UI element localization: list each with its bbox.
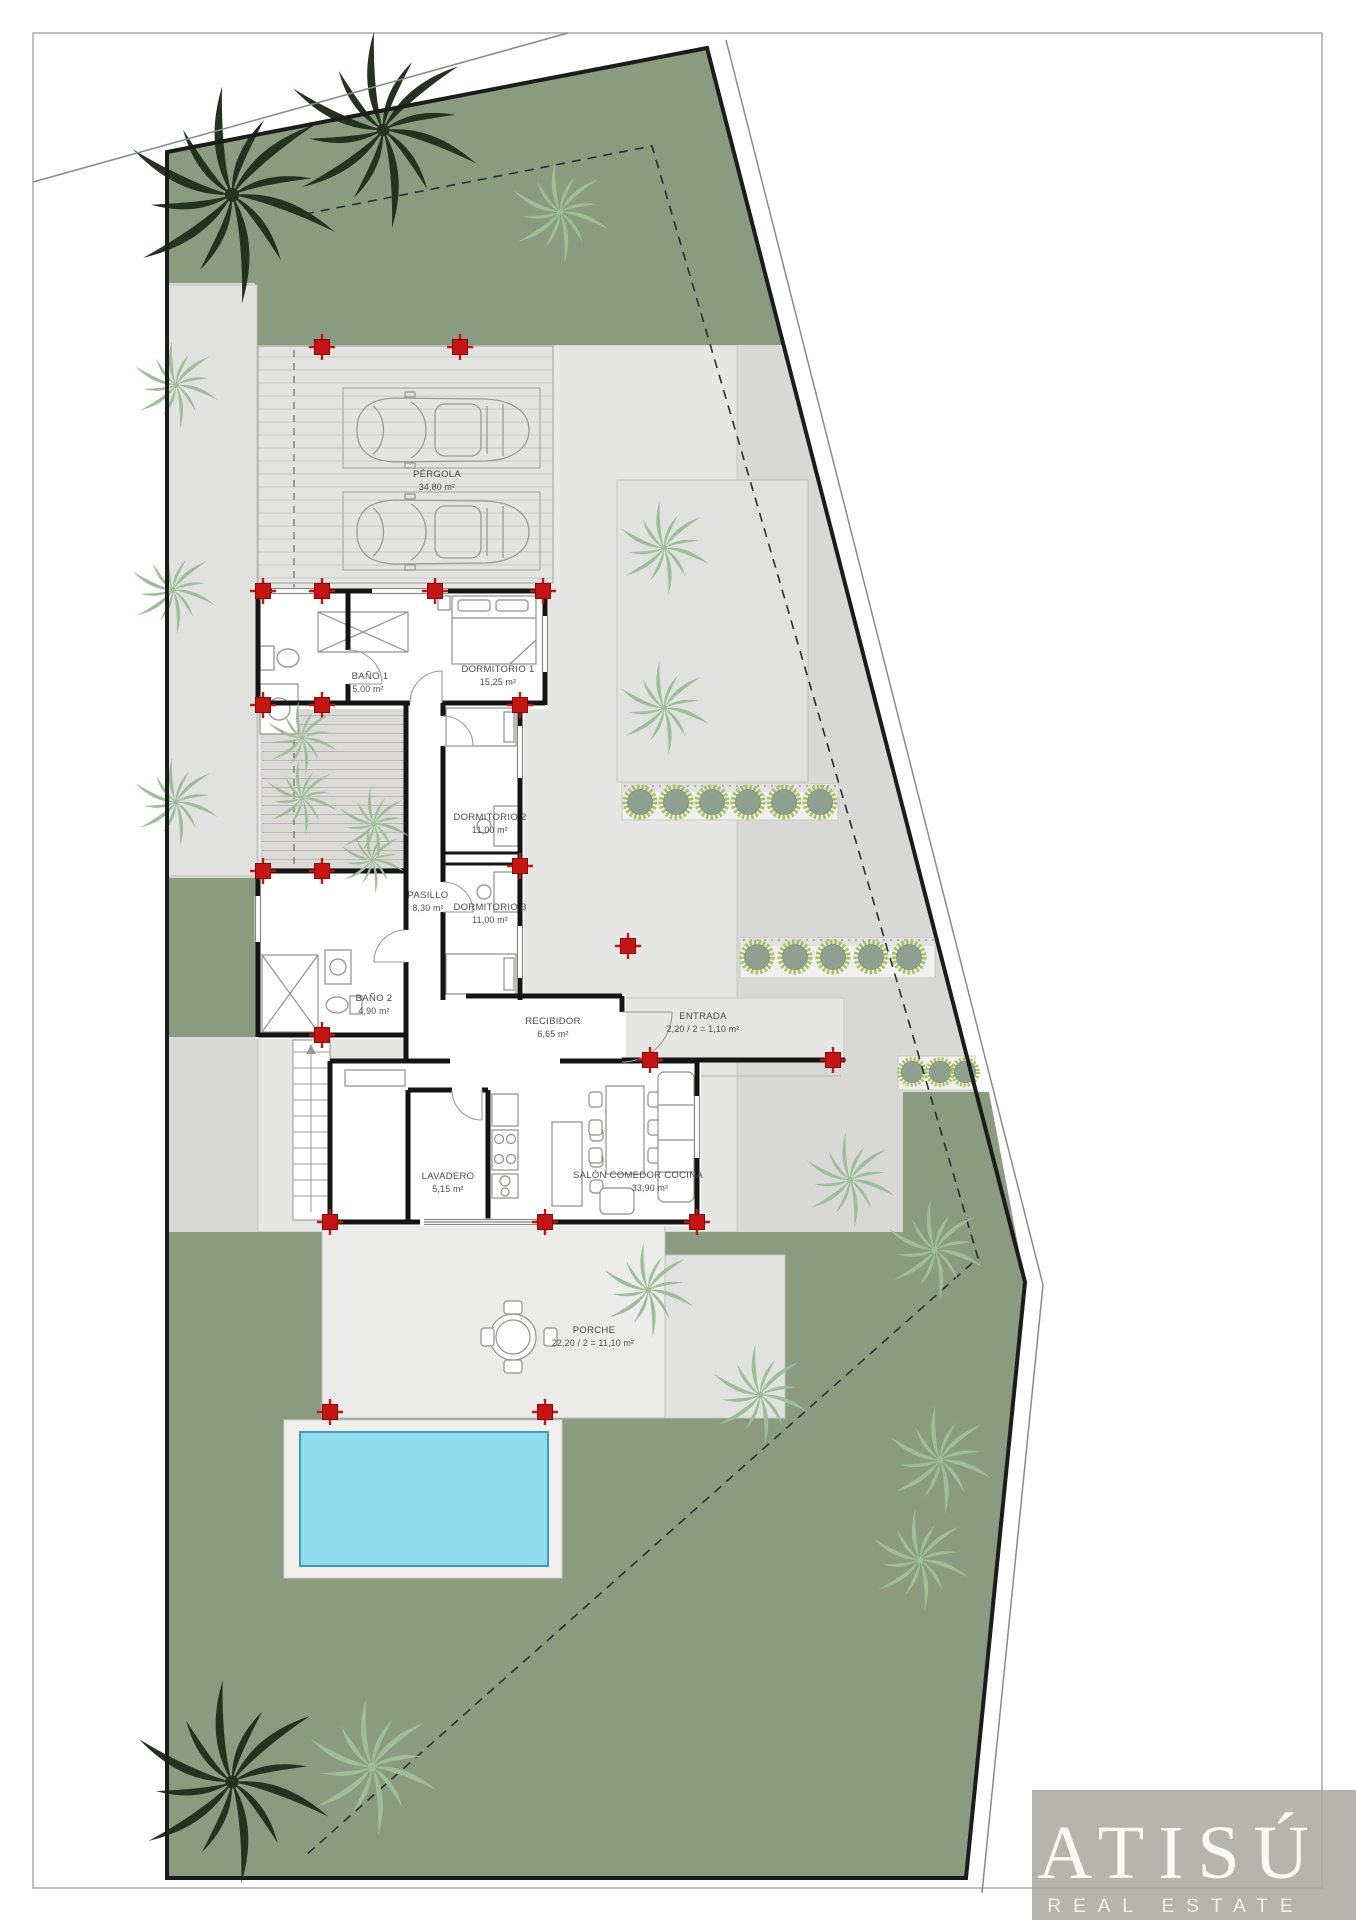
svg-text:15,25 m²: 15,25 m² bbox=[480, 677, 516, 687]
svg-text:34,80 m²: 34,80 m² bbox=[419, 482, 455, 492]
logo-wordmark: ATISÚ bbox=[1037, 1811, 1322, 1895]
svg-text:DORMITORIO 2: DORMITORIO 2 bbox=[453, 812, 526, 823]
gravel-patch-porch bbox=[665, 1255, 785, 1418]
svg-text:BAÑO 1: BAÑO 1 bbox=[352, 671, 389, 682]
svg-text:11,00 m²: 11,00 m² bbox=[472, 915, 508, 925]
pergola-carport bbox=[258, 346, 553, 583]
exterior-stairs bbox=[293, 1040, 330, 1220]
site-plan-drawing: PÉRGOLA 34,80 m² BAÑO 1 5,00 m² DORMITOR… bbox=[0, 0, 1356, 1920]
svg-text:RECIBIDOR: RECIBIDOR bbox=[525, 1016, 580, 1027]
svg-text:5,00 m²: 5,00 m² bbox=[352, 684, 383, 694]
svg-text:22,20 / 2 = 11,10 m²: 22,20 / 2 = 11,10 m² bbox=[552, 1338, 634, 1348]
svg-text:LAVADERO: LAVADERO bbox=[422, 1171, 475, 1182]
svg-text:11,00 m²: 11,00 m² bbox=[472, 825, 508, 835]
svg-text:PORCHE: PORCHE bbox=[573, 1325, 615, 1336]
svg-text:PÉRGOLA: PÉRGOLA bbox=[413, 469, 461, 480]
svg-text:5,15 m²: 5,15 m² bbox=[432, 1184, 463, 1194]
svg-text:6,65 m²: 6,65 m² bbox=[537, 1029, 568, 1039]
swimming-pool bbox=[284, 1420, 562, 1578]
svg-text:BAÑO 2: BAÑO 2 bbox=[356, 993, 393, 1004]
brand-logo: ATISÚ REAL ESTATE bbox=[1037, 1811, 1322, 1917]
svg-text:DORMITORIO 1: DORMITORIO 1 bbox=[461, 664, 534, 675]
logo-tagline: REAL ESTATE bbox=[1047, 1896, 1304, 1917]
floor-plan-page: PÉRGOLA 34,80 m² BAÑO 1 5,00 m² DORMITOR… bbox=[0, 0, 1356, 1920]
svg-text:DORMITORIO 3: DORMITORIO 3 bbox=[453, 902, 526, 913]
svg-text:8,30 m²: 8,30 m² bbox=[412, 903, 443, 913]
garden-left bbox=[167, 878, 266, 1037]
svg-text:SALÓN COMEDOR COCINA: SALÓN COMEDOR COCINA bbox=[573, 1170, 703, 1181]
svg-text:ENTRADA: ENTRADA bbox=[679, 1011, 727, 1022]
svg-text:PASILLO: PASILLO bbox=[408, 890, 449, 901]
svg-text:2,20 / 2 = 1,10 m²: 2,20 / 2 = 1,10 m² bbox=[667, 1024, 740, 1034]
porch-slab bbox=[322, 1222, 665, 1418]
svg-text:33,90 m²: 33,90 m² bbox=[632, 1183, 668, 1193]
svg-text:4,90 m²: 4,90 m² bbox=[358, 1006, 389, 1016]
